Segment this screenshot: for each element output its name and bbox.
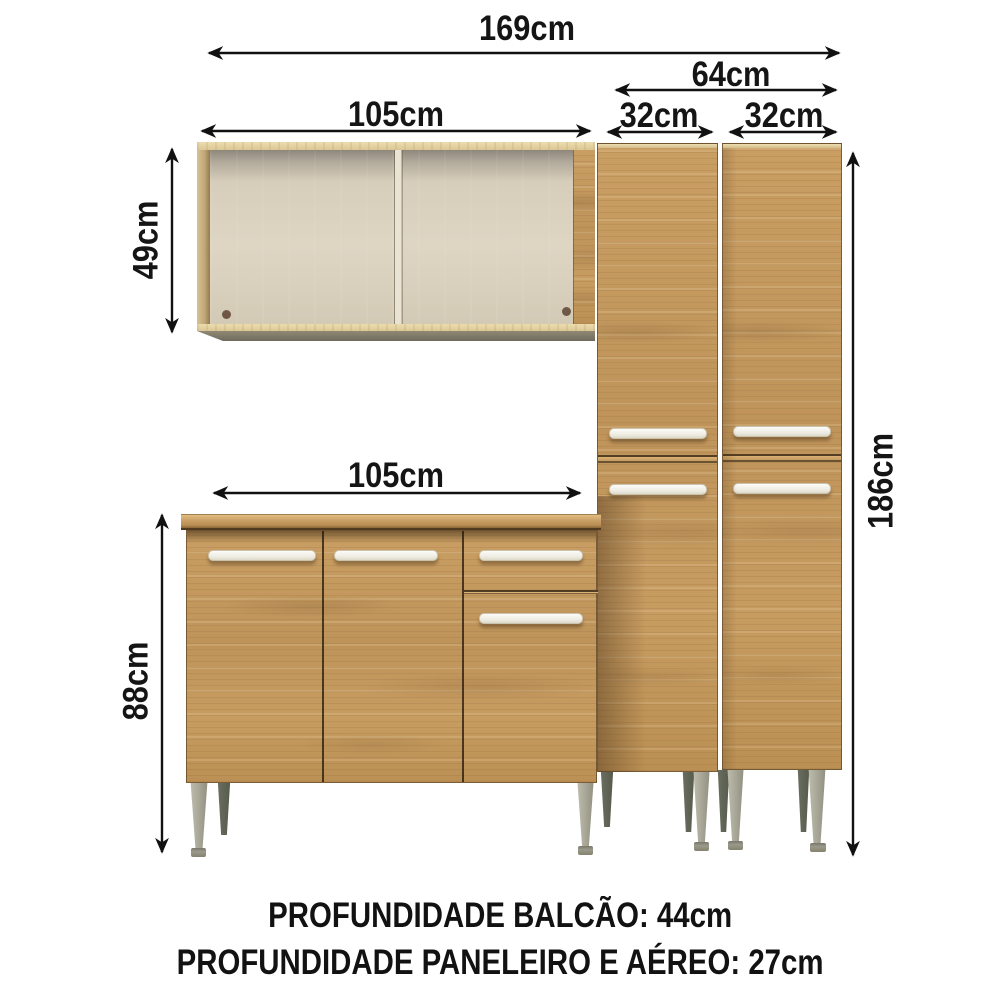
drawer-separator [464,590,598,594]
tall-cabinet-right [722,143,842,770]
label-tower-height: 186cm [864,433,899,529]
shelf-pin-left [222,310,231,319]
tall-right-right-foot [810,843,826,852]
base-door-1-handle [208,550,316,561]
footer-depth-balcao-text: PROFUNDIDADE BALCÃO: 44cm [268,898,732,933]
countertop-shadow [187,531,596,543]
label-upper-width: 105cm [348,97,444,132]
base-cabinet-countertop [181,514,601,530]
label-total-width: 169cm [479,11,575,46]
base-door-gap-1 [322,531,324,782]
base-front-left-foot [191,848,206,857]
tall-right-top-edge [723,144,841,148]
upper-wall-cabinet [197,142,595,341]
tall-left-cast-shadow [598,496,646,772]
label-towers-width: 64cm [692,57,771,92]
shelf-pin-right [562,307,571,316]
tall-right-upper-door-handle [733,426,831,437]
label-counter-width: 105cm [348,458,444,493]
upper-cabinet-interior [210,150,573,324]
tall-left-lower-door-handle [609,484,707,495]
footer-depth-paneleiro-text: PROFUNDIDADE PANELEIRO E AÉREO: 27cm [177,945,824,980]
tall-left-foot [694,842,709,851]
label-tower-right-width: 32cm [745,98,824,133]
tall-cabinet-left [597,143,718,772]
tall-left-upper-door-handle [609,428,707,439]
base-cabinet-body [186,530,597,783]
base-door-3-handle [479,613,583,624]
tall-left-door-divider [598,455,717,463]
base-door-gap-2 [462,531,464,782]
upper-cabinet-left-side [197,150,210,324]
tall-right-inner-shade [723,148,737,771]
footer-depth-paneleiro: PROFUNDIDADE PANELEIRO E AÉREO: 27cm [0,945,1000,980]
label-upper-height: 49cm [129,201,164,280]
upper-cabinet-center-divider [394,150,403,324]
tall-right-lower-door-handle [733,483,831,494]
base-door-2-handle [334,550,438,561]
footer-depth-balcao: PROFUNDIDADE BALCÃO: 44cm [0,898,1000,933]
upper-cabinet-right-side [573,150,595,324]
tall-left-top-edge [598,144,717,148]
base-drawer-handle [479,550,583,561]
upper-cabinet-bottom-board [197,331,595,341]
upper-cabinet-bottom-frame [197,324,595,331]
label-tower-left-width: 32cm [620,98,699,133]
tall-right-left-foot [728,841,743,850]
base-front-right-foot [578,846,593,855]
product-dimension-diagram: 169cm 64cm 32cm 32cm 105cm 105cm 49cm 88… [0,0,1000,1000]
tall-right-door-divider [723,454,841,462]
label-counter-height: 88cm [119,642,154,721]
